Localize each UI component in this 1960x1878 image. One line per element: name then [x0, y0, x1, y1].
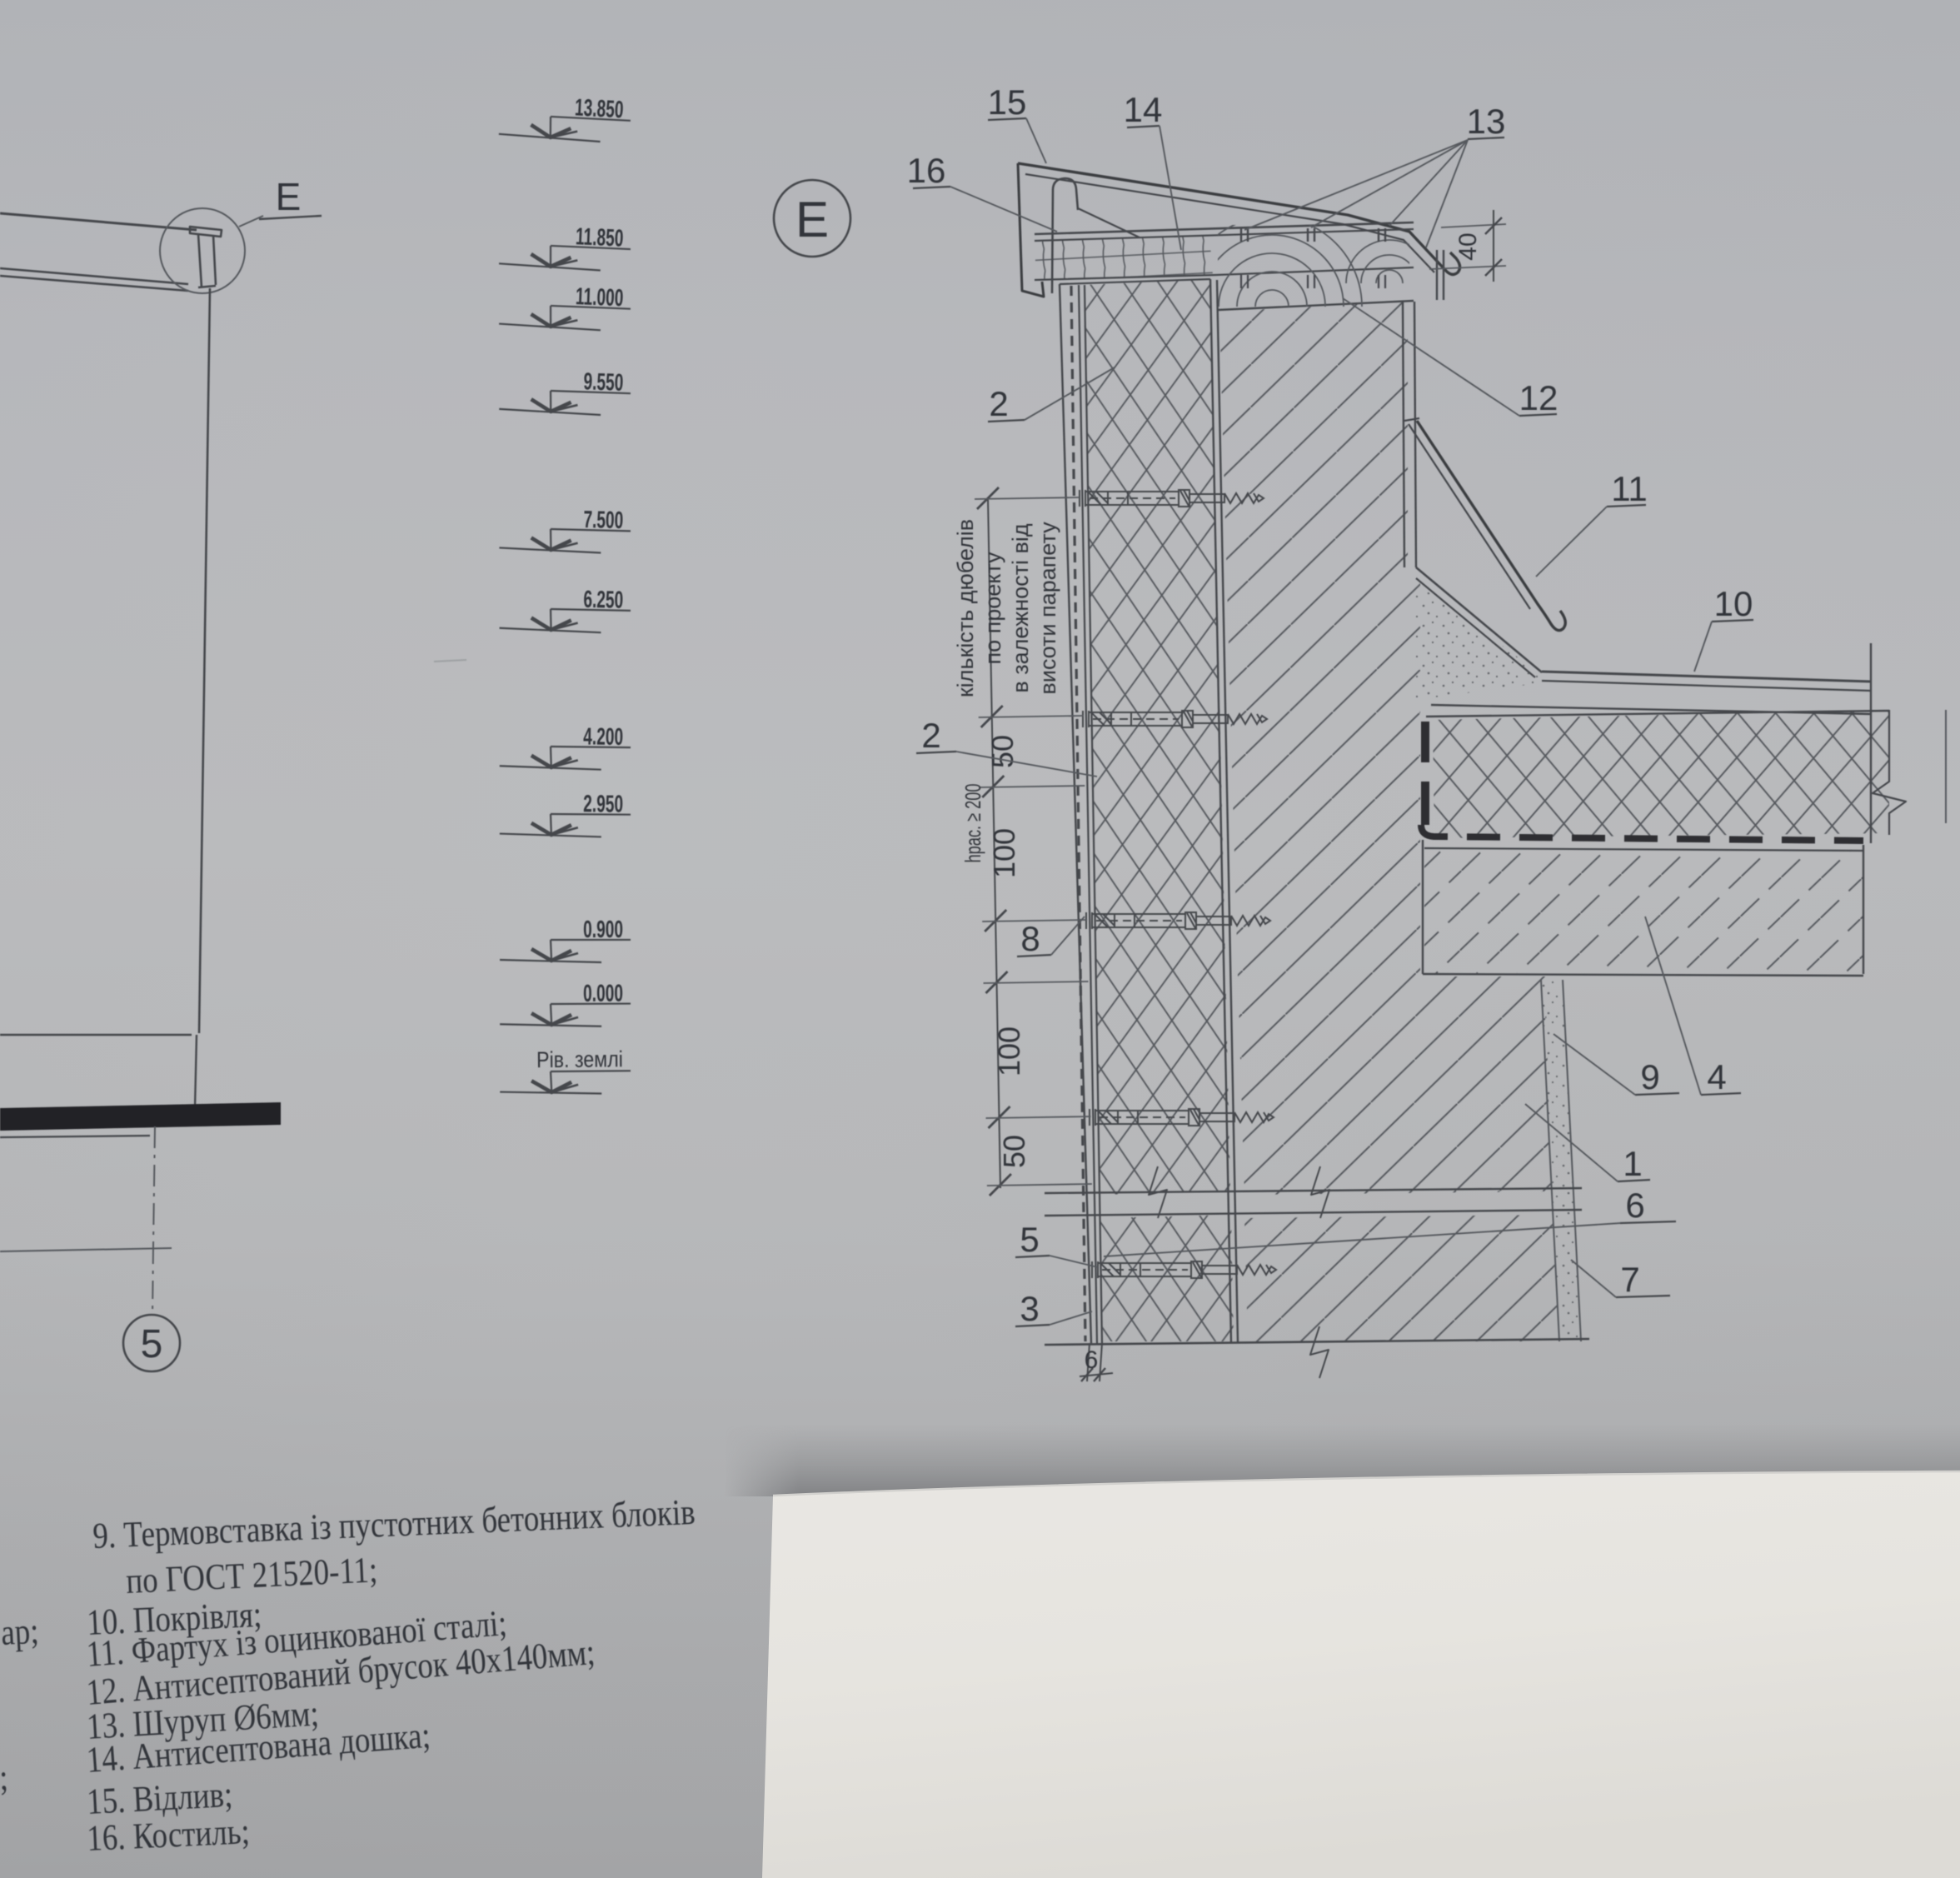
svg-text:8: 8 [1020, 919, 1040, 958]
svg-text:2: 2 [989, 384, 1008, 423]
svg-text:Рів. землі: Рів. землі [536, 1047, 623, 1073]
svg-text:5: 5 [1020, 1220, 1039, 1259]
svg-text:2.950: 2.950 [583, 791, 623, 817]
svg-text:7: 7 [1620, 1260, 1639, 1299]
svg-text:6: 6 [1625, 1186, 1644, 1225]
svg-text:11: 11 [1611, 469, 1648, 508]
svg-text:50: 50 [985, 735, 1020, 768]
svg-text:16. Костиль;: 16. Костиль; [86, 1811, 251, 1859]
svg-text:кількість дюбелів: кількість дюбелів [953, 519, 978, 697]
svg-text:5: 5 [141, 1322, 163, 1366]
svg-text:0.900: 0.900 [583, 917, 623, 943]
svg-text:14: 14 [1124, 90, 1163, 129]
svg-text:13.850: 13.850 [574, 95, 624, 124]
svg-text:100: 100 [987, 828, 1021, 878]
svg-text:1: 1 [1623, 1144, 1642, 1183]
svg-text:по проекту: по проекту [980, 552, 1005, 665]
svg-text:0.000: 0.000 [583, 981, 623, 1007]
svg-text:13: 13 [1467, 102, 1506, 141]
svg-text:висоти парапету: висоти парапету [1035, 522, 1060, 695]
svg-text:6: 6 [1085, 1346, 1099, 1374]
svg-text:2: 2 [921, 716, 940, 755]
svg-text:11.850: 11.850 [575, 223, 624, 252]
svg-text:E: E [276, 175, 302, 218]
svg-text:12: 12 [1519, 378, 1559, 417]
svg-text:в залежності від: в залежності від [1008, 523, 1033, 692]
svg-text:15: 15 [988, 82, 1027, 122]
svg-text:9.550: 9.550 [583, 369, 624, 397]
svg-text:50: 50 [997, 1135, 1031, 1168]
svg-text:100: 100 [992, 1026, 1026, 1076]
svg-text:16: 16 [907, 151, 946, 190]
svg-text:11.000: 11.000 [575, 283, 624, 312]
svg-text:3: 3 [1020, 1289, 1039, 1328]
svg-text:40: 40 [1454, 232, 1482, 260]
svg-text:6.250: 6.250 [583, 587, 623, 614]
svg-text:4.200: 4.200 [583, 724, 623, 751]
svg-text:ар;: ар; [0, 1611, 40, 1653]
svg-text:10: 10 [1714, 584, 1753, 623]
svg-text:7.500: 7.500 [583, 507, 624, 534]
svg-text:hрас. ≥ 200: hрас. ≥ 200 [961, 784, 985, 863]
svg-text:9: 9 [1640, 1057, 1659, 1096]
svg-text:4: 4 [1707, 1057, 1726, 1096]
svg-text:E: E [795, 192, 829, 247]
